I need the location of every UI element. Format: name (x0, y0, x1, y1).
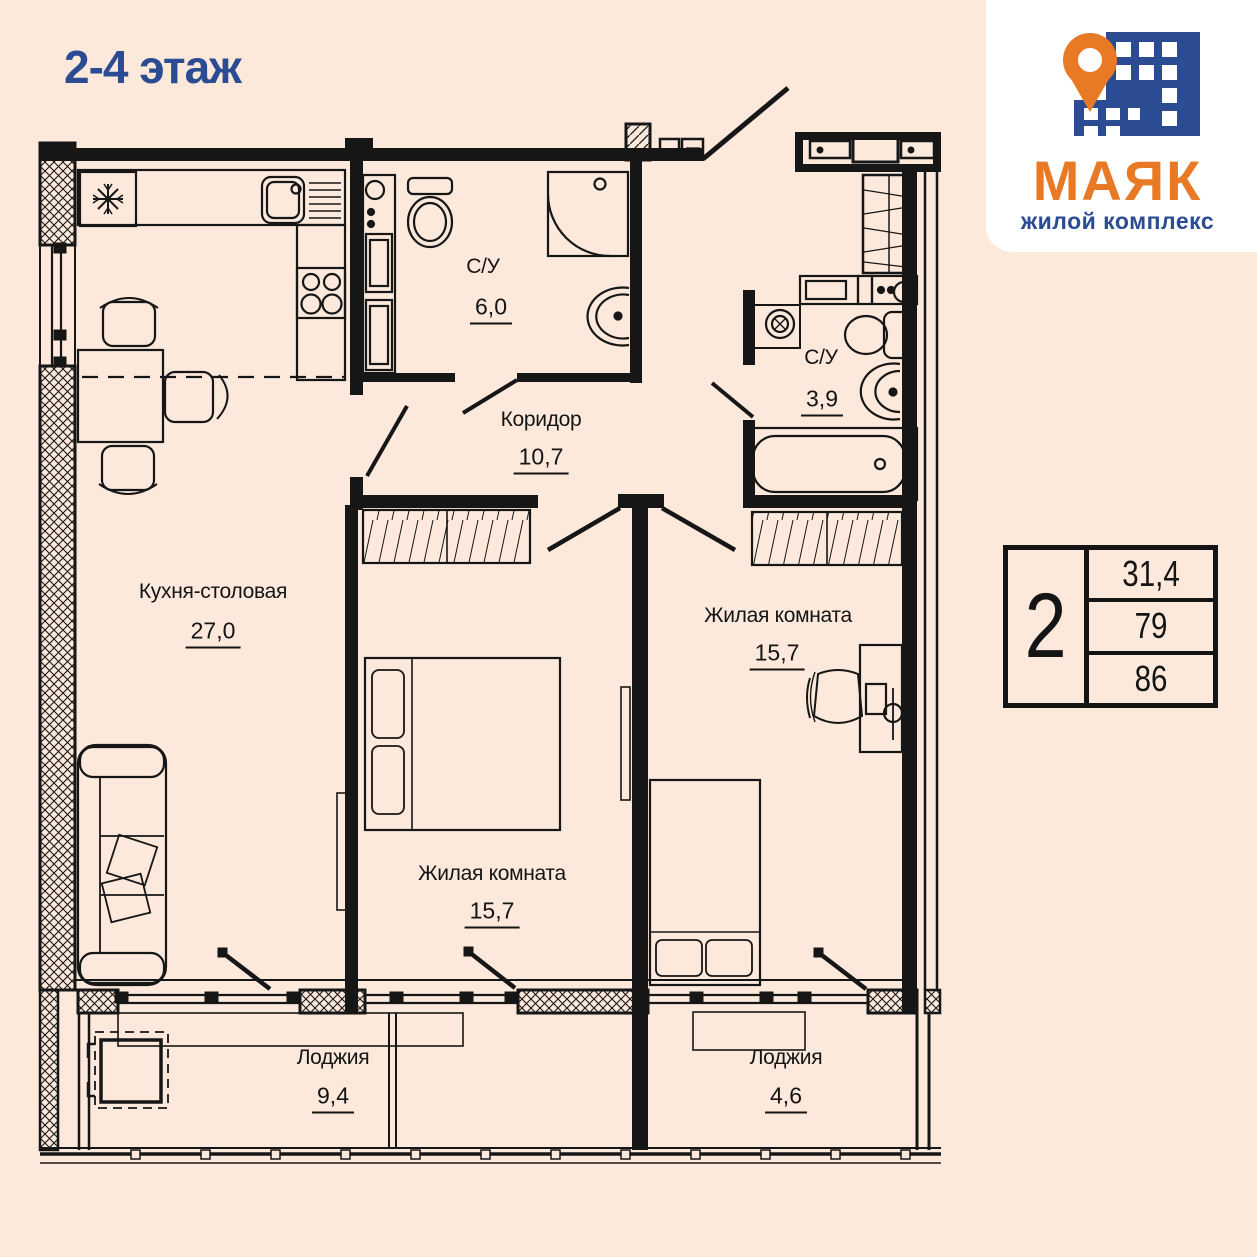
fridge-icon (80, 172, 136, 226)
area-value-row: 31,4 (1089, 550, 1213, 602)
floor-plan-page: 2-4 этаж (0, 0, 1257, 1257)
room-area-bedroom-mid: 15,7 (465, 898, 520, 929)
bathroom2-furniture (745, 175, 917, 500)
wardrobe (363, 510, 530, 563)
room-area-bathroom-2: 3,9 (801, 386, 843, 417)
dining-table (78, 298, 228, 494)
single-bed (650, 780, 760, 985)
room-area-bathroom-1: 6,0 (470, 294, 512, 325)
rooms-count-cell: 2 (1003, 545, 1089, 708)
room-label-corridor: Коридор (501, 408, 582, 432)
kitchen-furniture (78, 170, 345, 985)
washbasin-icon (861, 364, 900, 420)
kitchen-sink-icon (262, 177, 341, 223)
logo-card: МАЯК жилой комплекс (986, 0, 1257, 252)
double-bed (365, 658, 560, 830)
radiator (621, 687, 630, 800)
toilet-icon (845, 312, 910, 358)
room-area-corridor: 10,7 (514, 444, 569, 475)
desk (860, 645, 902, 752)
hall-cabinet (800, 276, 917, 304)
page-title: 2-4 этаж (64, 40, 241, 94)
room-area-kitchen: 27,0 (186, 618, 241, 649)
room-area-loggia-left: 9,4 (312, 1083, 354, 1114)
loggia-cabinet (88, 1032, 168, 1108)
washbasin-icon (588, 288, 629, 346)
room-label-kitchen: Кухня-столовая (139, 580, 287, 604)
room-area-bedroom-right: 15,7 (750, 640, 805, 671)
bathtub-icon (745, 428, 917, 500)
area-value-row: 79 (1089, 602, 1213, 654)
wardrobe (752, 512, 902, 565)
tall-units (363, 175, 395, 373)
sofa (78, 745, 166, 985)
bedroom-mid-furniture (337, 510, 630, 910)
room-area-loggia-right: 4,6 (765, 1083, 807, 1114)
desk-chair (807, 670, 862, 723)
area-value-row: 86 (1089, 655, 1213, 703)
washing-machine-icon (755, 305, 800, 348)
balcony-railing (40, 1148, 941, 1163)
logo-name: МАЯК (986, 148, 1249, 213)
stove-icon (297, 268, 345, 318)
room-label-bathroom-1: С/У (466, 255, 499, 279)
apartment-info-table: 2 31,4 79 86 (1003, 545, 1218, 708)
toilet-icon (408, 178, 452, 247)
shower-icon (548, 172, 628, 256)
room-label-bathroom-2: С/У (804, 346, 837, 370)
areas-column: 31,4 79 86 (1089, 545, 1218, 708)
room-label-bedroom-mid: Жилая комната (418, 862, 566, 886)
logo-art (1054, 28, 1204, 146)
room-label-loggia-right: Лоджия (750, 1046, 823, 1070)
bedroom-right-furniture (650, 512, 902, 985)
logo-subtitle: жилой комплекс (986, 208, 1249, 235)
room-label-loggia-left: Лоджия (297, 1046, 370, 1070)
room-label-bedroom-right: Жилая комната (704, 604, 852, 628)
